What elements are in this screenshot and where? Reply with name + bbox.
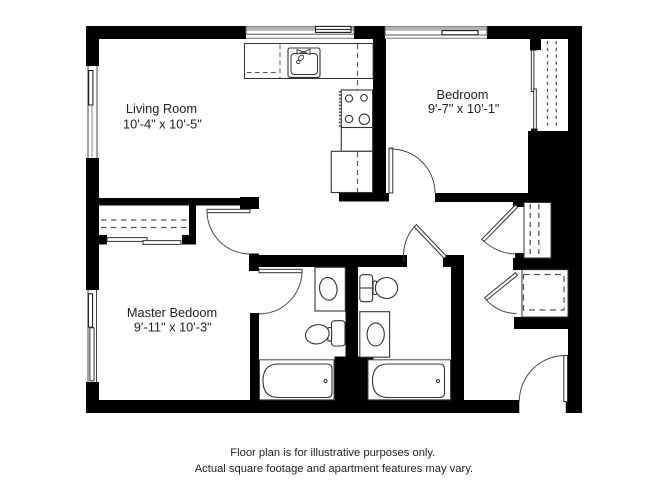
svg-text:Master Bedoom: Master Bedoom bbox=[127, 305, 217, 320]
svg-text:Actual square footage and apar: Actual square footage and apartment feat… bbox=[195, 463, 473, 475]
svg-text:10'-4" x 10'-5": 10'-4" x 10'-5" bbox=[123, 117, 202, 132]
svg-text:9'-7" x 10'-1": 9'-7" x 10'-1" bbox=[428, 101, 500, 116]
svg-text:9'-11" x 10'-3": 9'-11" x 10'-3" bbox=[134, 320, 212, 335]
svg-text:Bedroom: Bedroom bbox=[437, 87, 489, 102]
svg-text:Floor plan is for illustrative: Floor plan is for illustrative purposes … bbox=[230, 447, 435, 459]
svg-text:Living Room: Living Room bbox=[126, 101, 197, 116]
